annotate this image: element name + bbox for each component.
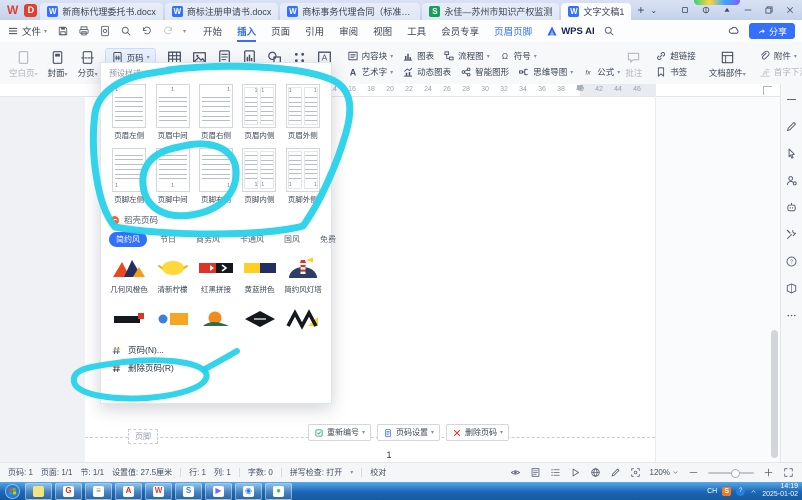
new-tab-button[interactable]: + — [634, 3, 647, 17]
statusbar-info: 页码: 1页面: 1/1节: 1/1设置值: 27.5厘米行: 1列: 1字数:… — [8, 467, 386, 478]
ink-icon[interactable] — [610, 467, 621, 478]
thumb-line — [202, 159, 230, 160]
docer-icon — [109, 215, 120, 226]
close-button[interactable] — [785, 5, 795, 15]
preset-label: 页眉左侧 — [109, 130, 149, 141]
preset-label: 页眉外侧 — [283, 130, 323, 141]
status-3: 设置值: 27.5厘米 — [112, 467, 172, 478]
ribbon-button-label: 流程图 — [458, 50, 484, 62]
preset-h-right[interactable]: 1页眉右侧 — [196, 84, 236, 143]
status-5: 列: 1 — [214, 467, 231, 478]
docer-chip[interactable]: 几何风橙色 — [109, 256, 149, 295]
ribbon-tab-工具[interactable]: 工具 — [406, 20, 427, 42]
ribbon-tab-引用[interactable]: 引用 — [304, 20, 325, 42]
document-tab-label: 永佳—苏州市知识产权监测 — [444, 5, 552, 18]
text-lines — [159, 93, 187, 125]
ribbon-button-label: 图表 — [417, 50, 434, 62]
language-indicator[interactable]: CH — [707, 488, 717, 495]
cloud-upload-icon[interactable] — [728, 25, 740, 37]
ribbon-button-label: 空白页 — [9, 68, 35, 78]
caret-down-icon: ▾ — [65, 72, 68, 78]
separator — [281, 468, 282, 477]
ribbon-button-符号[interactable]: Ω符号▾ — [499, 50, 537, 62]
docer-chip[interactable] — [283, 307, 323, 331]
mini-page: 1 — [115, 151, 143, 189]
print-preview-icon[interactable] — [99, 25, 111, 37]
docer-tab-节日[interactable]: 节日 — [153, 232, 183, 247]
side-tool-robot[interactable] — [785, 201, 798, 219]
ribbon-button-图表[interactable]: 图表 — [402, 50, 434, 62]
docer-chip[interactable]: 清新柠檬 — [153, 256, 193, 295]
print-icon[interactable] — [78, 25, 90, 37]
mini-page: 1 — [115, 87, 143, 125]
page-number-mark: 1 — [305, 182, 317, 188]
zoom-slider[interactable] — [708, 472, 754, 474]
thumb-line — [305, 155, 317, 156]
renumber-icon — [314, 428, 324, 438]
fullscreen-icon[interactable] — [783, 467, 794, 478]
wordart-icon: A — [347, 66, 359, 78]
cover-page-icon — [50, 50, 65, 65]
preset-thumbnail: 1 — [199, 84, 233, 128]
preset-f-left[interactable]: 1页脚左侧 — [109, 148, 149, 207]
wps-logo[interactable]: W — [4, 3, 21, 17]
pin-icon[interactable] — [722, 5, 732, 15]
help-icon: ? — [785, 255, 798, 268]
page-number-mark: 1 — [115, 183, 143, 189]
docer-chip-label: 黄蓝拼色 — [240, 284, 280, 295]
input-method-icon[interactable]: S — [722, 487, 731, 496]
preset-f-right[interactable]: 1页脚右侧 — [196, 148, 236, 207]
flowchart-icon — [443, 50, 455, 62]
hash-color-icon — [111, 345, 122, 356]
thumb-line — [305, 160, 317, 161]
ribbon-button-分页[interactable]: 分页▾ — [73, 43, 103, 85]
find-icon[interactable] — [120, 25, 132, 37]
status-7[interactable]: 拼写检查: 打开 — [290, 467, 342, 478]
text-lines — [305, 152, 317, 182]
docer-tab-简约风[interactable]: 简约风 — [109, 232, 147, 247]
footer-button-label: 重新编号 — [327, 427, 359, 438]
side-toolbar: ? — [780, 84, 802, 462]
thumb-line — [289, 106, 301, 107]
ribbon-button-label: 符号 — [514, 50, 531, 62]
workspace-icon[interactable] — [680, 5, 690, 15]
page-number-mark: 1 — [202, 183, 230, 189]
side-tool-feedback[interactable] — [785, 282, 798, 300]
thumb-line — [245, 102, 257, 103]
thumb-line — [261, 155, 273, 156]
docer-chip[interactable] — [196, 307, 236, 331]
taskbar-app-sticky-notes[interactable] — [25, 483, 52, 500]
thumb-line — [305, 120, 317, 121]
docer-tab-国风[interactable]: 国风 — [277, 232, 307, 247]
chip-art-lemon — [155, 256, 191, 280]
header-presets-grid: 1页眉左侧1页眉中间1页眉右侧11页眉内侧11页眉外侧 — [109, 84, 323, 143]
ribbon-tab-页面[interactable]: 页面 — [270, 20, 291, 42]
preset-thumbnail: 1 — [156, 84, 190, 128]
thumb-line — [115, 116, 143, 117]
preset-h-left[interactable]: 1页眉左侧 — [109, 84, 149, 143]
delete-x-icon — [452, 428, 462, 438]
preset-label: 页脚左侧 — [109, 194, 149, 205]
thumb-line — [202, 155, 230, 156]
status-2: 节: 1/1 — [80, 467, 104, 478]
vertical-scrollbar-thumb[interactable] — [771, 330, 778, 458]
docer-logo-icon[interactable]: D — [24, 4, 37, 17]
chip-art-sunset — [198, 307, 234, 331]
footer-toolbar: 重新编号▾页码设置▾删除页码▾ — [308, 424, 509, 441]
docer-chip[interactable] — [240, 307, 280, 331]
thumb-line — [159, 120, 187, 121]
document-tabs: W新商标代理委托书.docxW商标注册申请书.docxW商标事务代理合同（标准）… — [40, 0, 631, 20]
footer-button-删除页码[interactable]: 删除页码▾ — [446, 424, 509, 441]
ribbon-tab-插入[interactable]: 插入 — [236, 20, 257, 42]
preset-h-inside[interactable]: 11页眉内侧 — [239, 84, 279, 143]
thumb-line — [159, 101, 187, 102]
preset-label: 页眉中间 — [152, 130, 192, 141]
side-tool-cursor[interactable] — [785, 147, 798, 165]
skin-icon[interactable] — [701, 5, 711, 15]
document-tab[interactable]: W商标注册申请书.docx — [165, 3, 279, 20]
mindmap-icon — [518, 66, 530, 78]
thumb-line — [289, 111, 301, 112]
ribbon-button-流程图[interactable]: 流程图▾ — [443, 50, 490, 62]
taskbar-app-media-app[interactable]: ▶ — [205, 483, 232, 500]
start-button[interactable] — [2, 483, 22, 499]
file-caret-icon: ▾ — [44, 28, 47, 35]
ribbon-button-艺术字[interactable]: A艺术字▾ — [347, 66, 394, 78]
web-view-icon[interactable] — [590, 467, 601, 478]
wps-doc-icon: W — [172, 6, 183, 17]
ribbon-tabs: 开始插入页面引用审阅视图工具会员专享页眉页脚 — [202, 20, 533, 42]
save-icon[interactable] — [57, 25, 69, 37]
thumb-line — [245, 178, 257, 179]
thumb-line — [202, 169, 230, 170]
sogou-browser-icon: S — [183, 486, 194, 497]
reading-view-icon[interactable] — [510, 467, 521, 478]
page-margin-left — [0, 96, 85, 462]
ribbon-button-label: 首字下沉 — [774, 66, 802, 78]
ruler-tick: 40 — [576, 86, 584, 93]
thumb-line — [115, 155, 143, 156]
ribbon-flow-group: 内容块▾图表流程图▾Ω符号▾ A艺术字▾动态图表智能图形思维导图▾fx公式▾ — [341, 43, 621, 85]
docer-tab-免费[interactable]: 免费 — [313, 232, 343, 247]
thumb-line — [159, 164, 187, 165]
text-lines — [289, 152, 301, 182]
ribbon-button-label: 动态图表 — [417, 66, 451, 78]
share-button[interactable]: 分享 — [749, 23, 795, 39]
ruler-tick: 46 — [633, 86, 641, 93]
ribbon-button-超链接[interactable]: 超链接 — [655, 50, 696, 62]
thumb-line — [202, 111, 230, 112]
chip-art-diamond — [242, 307, 278, 331]
menubar: 文件 ▾ ▾ 开始插入页面引用审阅视图工具会员专享页眉页脚 WPS AI 分享 — [0, 20, 802, 43]
dropcap-icon: A — [759, 66, 771, 78]
menu-item-delete-page-number[interactable]: 删除页码(R) — [109, 359, 323, 377]
side-tool-dots[interactable] — [785, 309, 798, 327]
omega-icon: Ω — [499, 50, 511, 62]
system-tray: CH S ? 14:19 2025-01-02 — [707, 483, 800, 500]
text-lines — [245, 94, 257, 124]
mini-page: 1 — [159, 87, 187, 125]
taskbar-app-wechat[interactable]: ● — [265, 483, 292, 500]
feedback-icon — [785, 282, 798, 295]
ribbon-button-公式[interactable]: fx公式▾ — [582, 66, 620, 78]
clock-date: 2025-01-02 — [762, 491, 798, 499]
zoom-out-button[interactable] — [688, 467, 699, 478]
footer-button-页码设置[interactable]: 页码设置▾ — [377, 424, 440, 441]
chip-art-red-black — [198, 256, 234, 280]
docer-chip[interactable]: 红黑拼接 — [196, 256, 236, 295]
caret-down-icon: ▾ — [743, 72, 746, 78]
ribbon-button-智能图形[interactable]: 智能图形 — [460, 66, 509, 78]
ribbon-button-label: 思维导图 — [533, 66, 567, 78]
preset-h-outside[interactable]: 11页眉外侧 — [283, 84, 323, 143]
footer-button-重新编号[interactable]: 重新编号▾ — [308, 424, 371, 441]
page-number-mark: 1 — [261, 182, 273, 188]
preset-label: 页眉右侧 — [196, 130, 236, 141]
page-view-icon[interactable] — [530, 467, 541, 478]
docer-chip-row-1: 几何风橙色清新柠檬红黑拼接黄蓝拼色简约风灯塔 — [109, 256, 323, 295]
chip-art-black-red — [111, 307, 147, 331]
restore-button[interactable] — [764, 5, 774, 15]
focus-mode-icon[interactable] — [630, 467, 641, 478]
wps-ai-icon — [546, 25, 558, 37]
redo-icon[interactable] — [162, 25, 174, 37]
doc-parts-icon — [720, 50, 735, 65]
page-number-mark: 1 — [245, 182, 257, 188]
outline-view-icon[interactable] — [550, 467, 561, 478]
dyn-chart-icon — [402, 66, 414, 78]
taskbar-app-pdf-reader[interactable]: A — [115, 483, 142, 500]
undo-icon[interactable] — [141, 25, 153, 37]
ribbon-button-label: 文档部件 — [709, 68, 743, 78]
preset-thumbnail: 1 — [112, 148, 146, 192]
wps-icon: W — [153, 486, 164, 497]
ribbon-button-内容块[interactable]: 内容块▾ — [347, 50, 394, 62]
text-lines — [289, 94, 301, 124]
thumb-line — [159, 159, 187, 160]
preset-f-center[interactable]: 1页脚中间 — [152, 148, 192, 207]
ruler-tick: 42 — [595, 86, 603, 93]
caret-down-icon: ▾ — [390, 53, 393, 60]
file-menu-label: 文件 — [22, 24, 41, 38]
ribbon-tab-开始[interactable]: 开始 — [202, 20, 223, 42]
tray-app-icon[interactable]: ? — [736, 487, 745, 496]
share-label: 分享 — [769, 25, 787, 38]
docer-chip-row-2 — [109, 307, 323, 331]
preset-thumbnail: 11 — [286, 84, 320, 128]
thumb-line — [202, 106, 230, 107]
ribbon-button-label: 书签 — [670, 66, 687, 78]
chip-art-yellow-blue — [242, 256, 278, 280]
thumb-line — [115, 101, 143, 102]
ribbon-button-附件[interactable]: 附件▾ — [759, 50, 802, 62]
taskbar-app-sogou-browser[interactable]: S — [175, 483, 202, 500]
comment-icon — [626, 50, 641, 65]
wps-doc-icon: W — [287, 6, 298, 17]
thumb-line — [245, 160, 257, 161]
pdf-reader-icon: A — [123, 486, 134, 497]
search-icon[interactable] — [603, 25, 615, 37]
mini-page: 1 — [260, 87, 274, 125]
thumb-line — [261, 97, 273, 98]
ruler-tick: 16 — [348, 86, 356, 93]
chip-art-geo-orange — [111, 256, 147, 280]
thumb-line — [245, 120, 257, 121]
text-lines — [261, 152, 273, 182]
ribbon-button-首字下沉: A首字下沉 — [759, 66, 802, 78]
content-block-icon — [347, 50, 359, 62]
ribbon-button-动态图表[interactable]: 动态图表 — [402, 66, 451, 78]
minimize-button[interactable] — [743, 5, 753, 15]
statusbar: 页码: 1页面: 1/1节: 1/1设置值: 27.5厘米行: 1列: 1字数:… — [0, 462, 802, 482]
separator — [180, 468, 181, 477]
menu-item-page-number[interactable]: 页码(N)... — [109, 341, 323, 359]
tab-list-caret-icon[interactable]: ⌄ — [650, 6, 657, 15]
ribbon-button-label: 内容块 — [362, 50, 388, 62]
docer-chip[interactable] — [153, 307, 193, 331]
docer-chip[interactable] — [109, 307, 149, 331]
separator — [361, 468, 362, 477]
text-lines — [305, 94, 317, 124]
clock[interactable]: 14:19 2025-01-02 — [762, 483, 798, 500]
ruler-tick: 28 — [462, 86, 470, 93]
mini-page: 1 — [304, 87, 318, 125]
tray-expand-icon[interactable] — [750, 488, 757, 495]
notepad-icon: ≡ — [93, 486, 104, 497]
docer-chip[interactable]: 黄蓝拼色 — [240, 256, 280, 295]
taskbar-app-wps[interactable]: W — [145, 483, 172, 500]
thumb-line — [289, 169, 301, 170]
tab-stop-selector[interactable] — [763, 86, 772, 95]
side-tool-min-line[interactable] — [785, 93, 798, 111]
thumb-line — [159, 155, 187, 156]
user-gear-icon — [785, 174, 798, 187]
page-number-dropdown: 预设样式 1页眉左侧1页眉中间1页眉右侧11页眉内侧11页眉外侧 1页脚左侧1页… — [100, 62, 332, 404]
presentation-icon[interactable] — [570, 467, 581, 478]
thumb-line — [115, 106, 143, 107]
thumb-line — [261, 169, 273, 170]
ribbon-button-文档部件[interactable]: 文档部件▾ — [704, 50, 751, 79]
status-4: 行: 1 — [189, 467, 206, 478]
taskbar-app-g-app[interactable]: G — [55, 483, 82, 500]
wps-ai-button[interactable]: WPS AI — [546, 25, 594, 37]
taskbar-app-notepad[interactable]: ≡ — [85, 483, 112, 500]
preset-thumbnail: 11 — [242, 148, 276, 192]
document-tab[interactable]: W商标事务代理合同（标准）.d — [280, 3, 420, 20]
footer-button-label: 删除页码 — [465, 427, 497, 438]
caret-down-icon: ▾ — [570, 69, 573, 76]
thumb-line — [245, 115, 257, 116]
stock-app-icon: S — [429, 6, 440, 17]
ribbon-button-label: 附件 — [774, 50, 791, 62]
chip-art-lighthouse — [285, 256, 321, 280]
text-lines — [159, 151, 187, 183]
preset-f-inside[interactable]: 11页脚内侧 — [239, 148, 279, 207]
document-tab[interactable]: W新商标代理委托书.docx — [40, 3, 163, 20]
file-menu[interactable]: 文件 ▾ — [7, 24, 47, 38]
ribbon-button-封面[interactable]: 封面▾ — [43, 43, 73, 85]
thumb-line — [289, 102, 301, 103]
page-right-edge — [655, 96, 656, 462]
mini-page: 1 — [244, 87, 258, 125]
preset-h-center[interactable]: 1页眉中间 — [152, 84, 192, 143]
zoom-level[interactable]: 120% — [650, 468, 679, 477]
docer-tab-卡通风[interactable]: 卡通风 — [233, 232, 271, 247]
ribbon-tab-视图[interactable]: 视图 — [372, 20, 393, 42]
footer-presets-grid: 1页脚左侧1页脚中间1页脚右侧11页脚内侧11页脚外侧 — [109, 148, 323, 207]
docer-chip-label: 清新柠檬 — [153, 284, 193, 295]
thumb-line — [305, 106, 317, 107]
svg-text:A: A — [349, 67, 356, 77]
page-number-mark: 1 — [159, 183, 187, 189]
ribbon-button-批注: 批注 — [620, 50, 647, 79]
ruler-tick: 18 — [367, 86, 375, 93]
thumb-line — [261, 120, 273, 121]
wps-doc-icon: W — [47, 6, 58, 17]
svg-text:Ω: Ω — [502, 52, 508, 61]
thumb-line — [289, 155, 301, 156]
ribbon-tab-会员专享[interactable]: 会员专享 — [440, 20, 480, 42]
dropdown-menu-items: 页码(N)...删除页码(R) — [109, 341, 323, 377]
docer-chip-label: 几何风橙色 — [109, 284, 149, 295]
ruler-tick: 20 — [386, 86, 394, 93]
thumb-line — [115, 159, 143, 160]
sticky-notes-icon — [33, 486, 44, 497]
preset-thumbnail: 11 — [286, 148, 320, 192]
ribbon-button-书签[interactable]: 书签 — [655, 66, 696, 78]
thumb-line — [289, 115, 301, 116]
footer-button-label: 页码设置 — [396, 427, 428, 438]
status-8[interactable]: 校对 — [370, 467, 386, 478]
side-tool-tools[interactable] — [785, 228, 798, 246]
thumb-line — [202, 101, 230, 102]
side-tool-pen[interactable] — [785, 120, 798, 138]
side-tool-help[interactable]: ? — [785, 255, 798, 273]
windows-start-icon — [5, 484, 20, 499]
thumb-line — [245, 106, 257, 107]
ribbon-tab-页眉页脚[interactable]: 页眉页脚 — [493, 20, 533, 42]
thumb-line — [115, 178, 143, 179]
document-tab[interactable]: W文字文稿1 — [561, 3, 631, 20]
docer-tab-商务风[interactable]: 商务风 — [189, 232, 227, 247]
mini-page: 1 — [288, 87, 302, 125]
hash-del-icon — [111, 363, 122, 374]
taskbar-app-browser-globe[interactable]: ◉ — [235, 483, 262, 500]
side-tool-user-gear[interactable] — [785, 174, 798, 192]
taskbar-apps: G≡AWS▶◉● — [25, 483, 292, 500]
menubar-right: 分享 — [728, 23, 795, 39]
docer-chip-label: 红黑拼接 — [196, 284, 236, 295]
caret-down-icon: ▾ — [534, 53, 537, 60]
docer-chip[interactable]: 简约风灯塔 — [283, 256, 323, 295]
statusbar-view-controls: 120% — [510, 467, 794, 478]
browser-globe-icon: ◉ — [243, 486, 254, 497]
thumb-line — [202, 178, 230, 179]
thumb-line — [159, 169, 187, 170]
thumb-line — [202, 97, 230, 98]
ribbon-button-思维导图[interactable]: 思维导图▾ — [518, 66, 573, 78]
zoom-caret-icon — [672, 469, 679, 476]
chip-art-blue-orange — [155, 307, 191, 331]
quick-access-caret-icon[interactable]: ▾ — [183, 28, 186, 35]
document-tab[interactable]: S永佳—苏州市知识产权监测 — [422, 3, 559, 20]
preset-f-outside[interactable]: 11页脚外侧 — [283, 148, 323, 207]
zoom-in-button[interactable] — [763, 467, 774, 478]
ribbon-tab-审阅[interactable]: 审阅 — [338, 20, 359, 42]
